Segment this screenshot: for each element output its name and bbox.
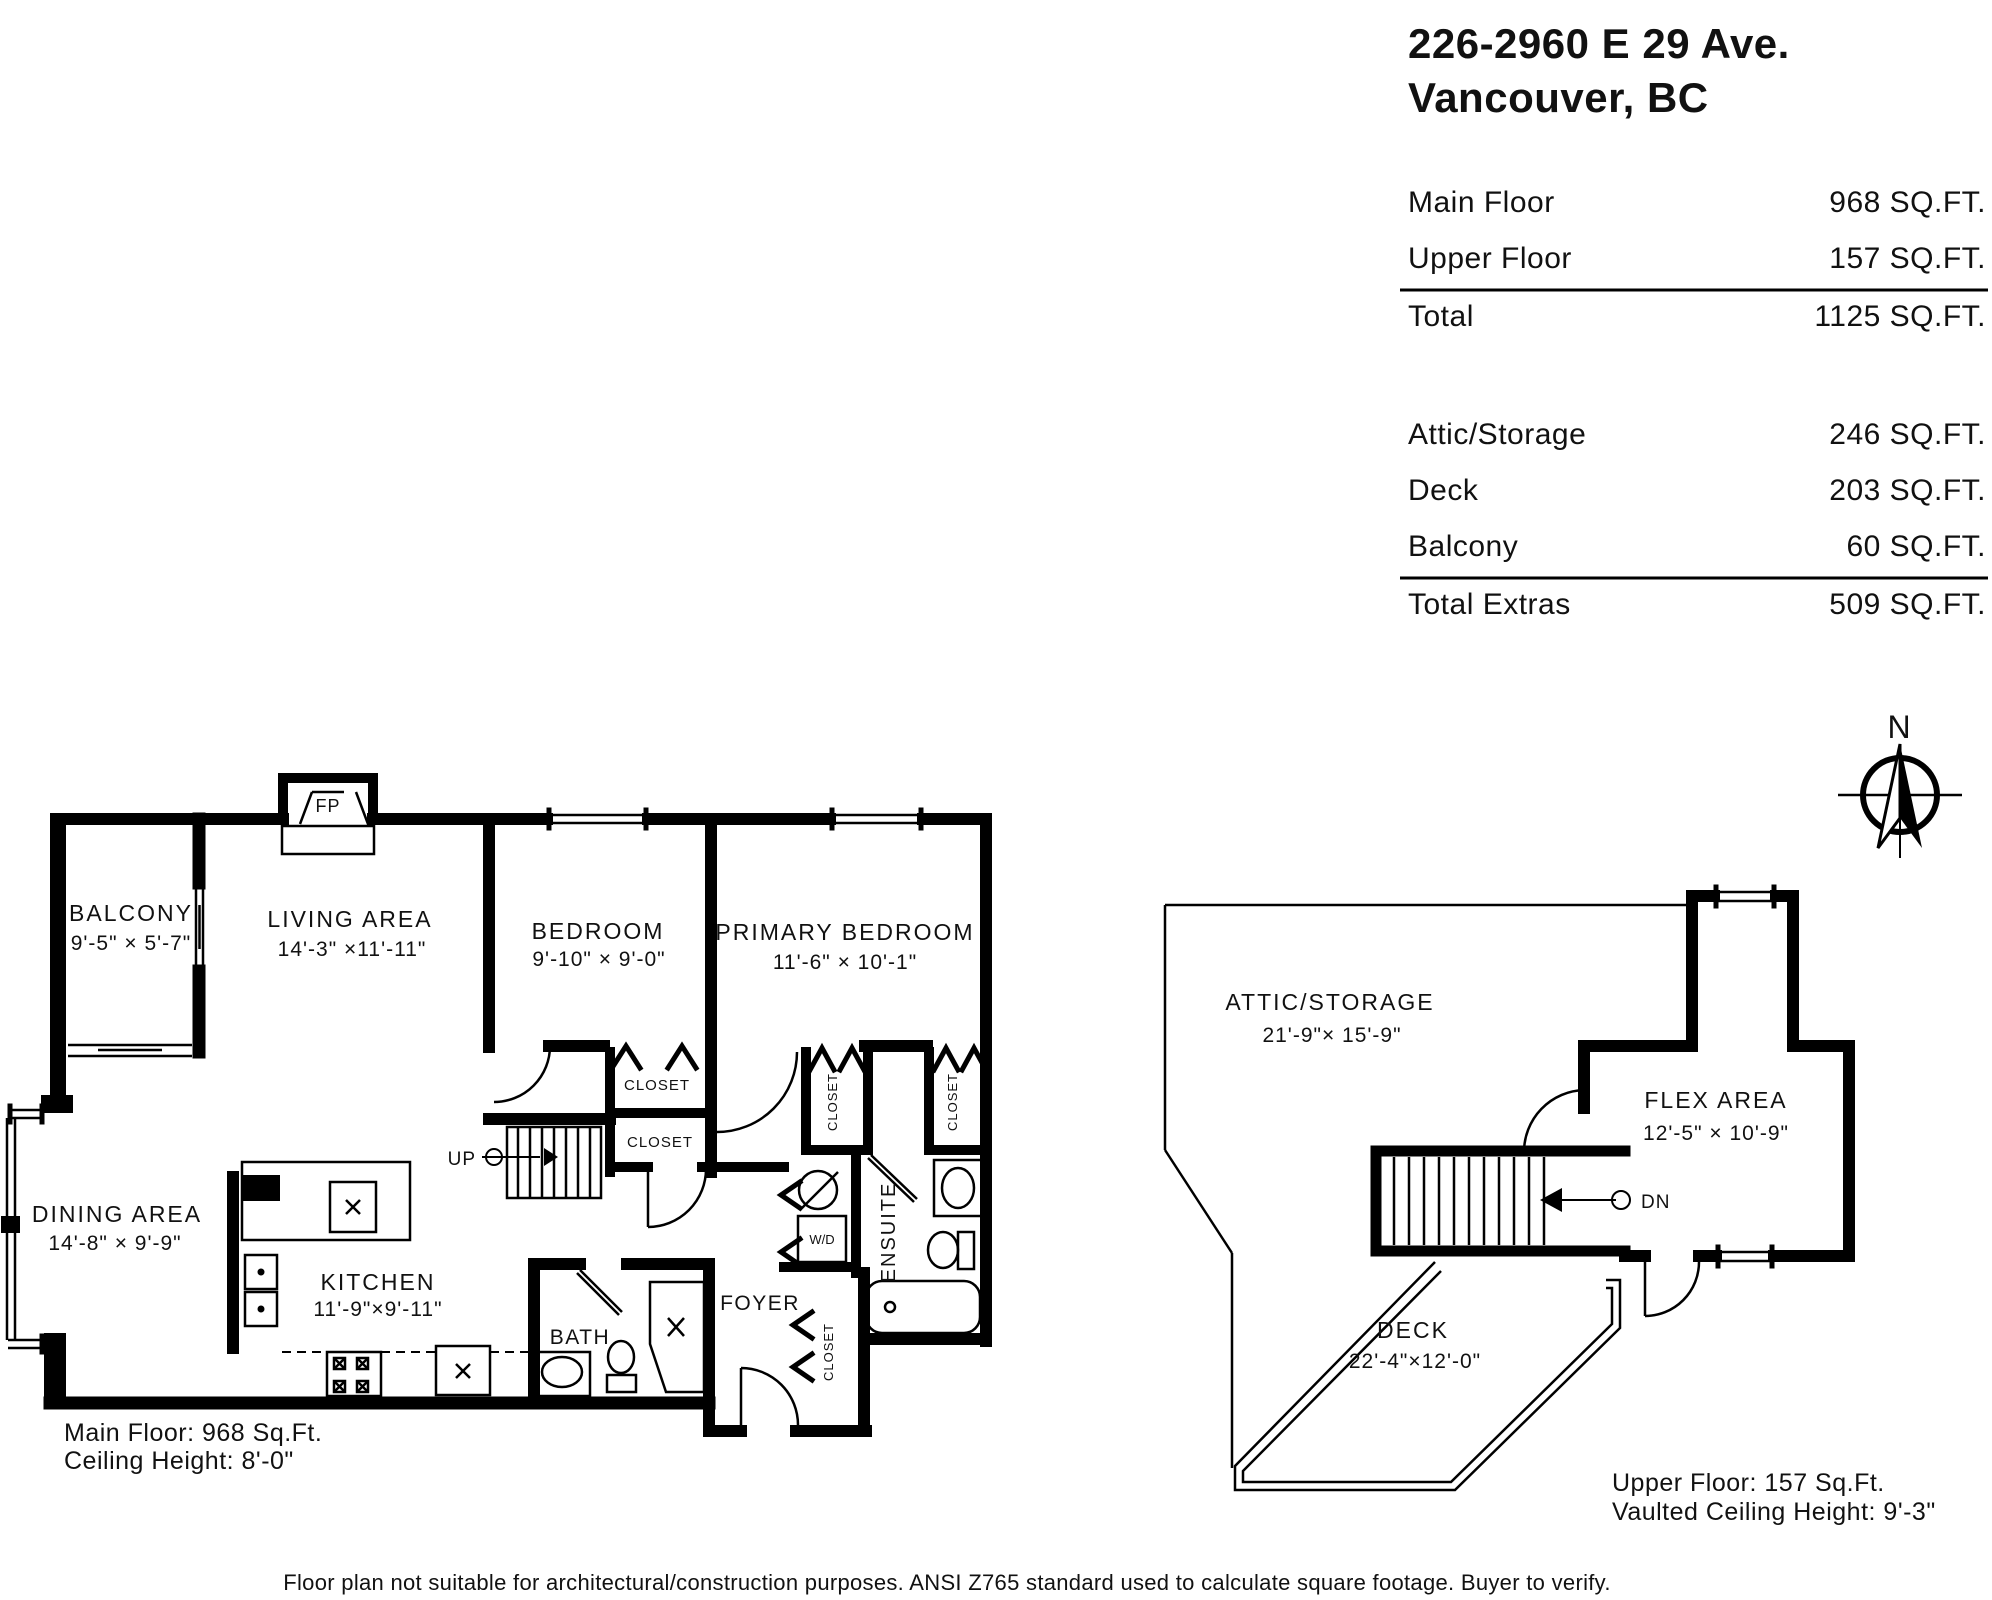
area-table: Main Floor 968 SQ.FT. Upper Floor 157 SQ… [1400,186,1988,621]
room-label-attic: ATTIC/STORAGE [1225,989,1434,1015]
table-row-label: Total [1408,300,1474,333]
address-line2: Vancouver, BC [1408,74,1709,121]
fireplace: FP [282,792,374,854]
table-row-value: 1125 SQ.FT. [1814,300,1986,333]
main-floor-plan: FP UP [1,778,986,1475]
compass-north-label: N [1887,709,1910,745]
table-row-value: 246 SQ.FT. [1829,418,1986,451]
room-dims-kitchen: 11'-9"×9'-11" [313,1298,442,1321]
room-label-foyer: FOYER [720,1292,800,1315]
table-row-label: Deck [1408,474,1479,507]
main-floor-caption-2: Ceiling Height: 8'-0" [64,1447,294,1475]
upper-floor-caption-1: Upper Floor: 157 Sq.Ft. [1612,1469,1885,1497]
laundry-fixtures: W/D [798,1171,846,1262]
table-row-value: 203 SQ.FT. [1829,474,1986,507]
room-label-primary-bedroom: PRIMARY BEDROOM [715,919,974,945]
footer-disclaimer: Floor plan not suitable for architectura… [283,1570,1611,1595]
table-row-label: Balcony [1408,530,1518,563]
room-label-dining: DINING AREA [32,1201,202,1227]
header: 226-2960 E 29 Ave. Vancouver, BC Main Fl… [1400,20,1988,621]
closet-label: CLOSET [945,1073,960,1131]
closet-label: CLOSET [627,1134,693,1151]
stairs-up-label: UP [448,1149,476,1170]
room-label-bath: BATH [550,1326,610,1349]
room-label-deck: DECK [1377,1317,1449,1343]
table-row-value: 60 SQ.FT. [1846,530,1986,563]
floor-plan-drawing: 226-2960 E 29 Ave. Vancouver, BC Main Fl… [0,0,1992,1600]
stairs-down-label: DN [1641,1192,1670,1213]
room-dims-bedroom: 9'-10" × 9'-0" [532,948,665,971]
room-dims-deck: 22'-4"×12'-0" [1349,1350,1481,1373]
stairs-up-arrow-icon [544,1148,558,1166]
table-row-value: 157 SQ.FT. [1829,242,1986,275]
room-dims-primary-bedroom: 11'-6" × 10'-1" [773,951,917,974]
table-row-label: Main Floor [1408,186,1555,219]
room-label-balcony: BALCONY [69,900,193,926]
floor-plan-page: 226-2960 E 29 Ave. Vancouver, BC Main Fl… [0,0,1992,1600]
upper-floor-plan: DN ATTIC/STORAGE 21'-9"× 15'-9" FLEX ARE… [1165,887,1936,1526]
main-floor-caption-1: Main Floor: 968 Sq.Ft. [64,1419,322,1447]
room-dims-living: 14'-3" ×11'-11" [278,938,427,961]
deck-outline [1235,1262,1620,1490]
stairs-up: UP [448,1127,601,1198]
closet-label: CLOSET [825,1073,840,1131]
room-dims-dining: 14'-8" × 9'-9" [48,1232,181,1255]
room-label-living: LIVING AREA [267,906,432,932]
closet-label: CLOSET [821,1323,836,1381]
table-row-label: Attic/Storage [1408,418,1586,451]
compass: N [1838,709,1962,858]
stairs-down: DN [1376,1151,1670,1251]
table-row-label: Upper Floor [1408,242,1572,275]
table-row-value: 509 SQ.FT. [1829,588,1986,621]
room-dims-flex: 12'-5" × 10'-9" [1643,1122,1789,1145]
upper-floor-caption-2: Vaulted Ceiling Height: 9'-3" [1612,1498,1936,1526]
table-row-value: 968 SQ.FT. [1829,186,1986,219]
room-dims-balcony: 9'-5" × 5'-7" [71,932,192,955]
address-line1: 226-2960 E 29 Ave. [1408,20,1790,67]
washer-dryer-label: W/D [809,1232,834,1247]
table-row-label: Total Extras [1408,588,1571,621]
room-dims-attic: 21'-9"× 15'-9" [1262,1024,1401,1047]
room-label-bedroom: BEDROOM [532,918,665,944]
room-label-flex: FLEX AREA [1644,1087,1787,1113]
room-label-kitchen: KITCHEN [321,1269,436,1295]
main-floor-walls [50,778,986,1431]
closet-label: CLOSET [624,1077,690,1094]
fireplace-label: FP [315,796,340,816]
room-label-ensuite: ENSUITE [878,1182,900,1283]
